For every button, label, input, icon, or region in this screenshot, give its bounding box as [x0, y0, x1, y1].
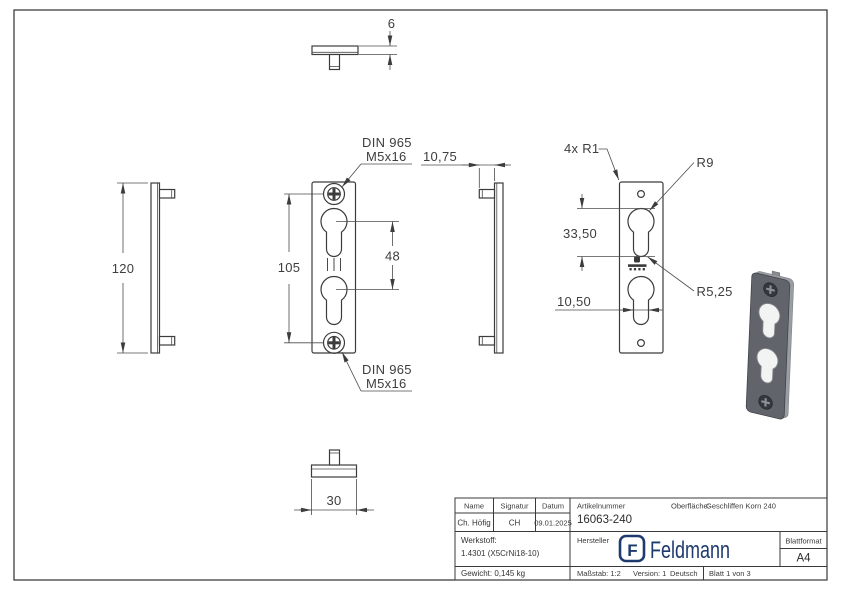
surface-label: Oberfläche: [671, 502, 710, 511]
dim-screw-spacing-value: 105 [278, 260, 301, 275]
date-value: 09.01.2025 [534, 519, 572, 528]
callout-screw-bottom: DIN 965 M5x16 [342, 352, 412, 391]
signature-label: Signatur [501, 502, 529, 511]
dim-plate-thickness: 6 [359, 16, 397, 70]
dim-slot-length-value: 33,50 [563, 226, 597, 241]
callout-keyhole-radius-value: R9 [697, 155, 714, 170]
manufacturer-label: Hersteller [577, 536, 610, 545]
dim-keyhole-pitch-value: 48 [385, 249, 400, 264]
callout-slot-radius-value: R5,25 [697, 284, 733, 299]
material-value: 1.4301 (X5CrNi18-10) [461, 549, 540, 558]
material-label: Werkstoff: [461, 536, 497, 545]
dim-plate-width-value: 30 [326, 493, 341, 508]
name-value: Ch. Höfig [457, 519, 490, 528]
weight-value: Gewicht: 0,145 kg [461, 569, 525, 578]
callout-corner-radius: 4x R1 [564, 141, 619, 180]
dim-plate-height-value: 120 [112, 261, 135, 276]
sheet-value: Blatt 1 von 3 [709, 569, 751, 578]
drawing-sheet: { "dimensions": { "plate_thickness": "6"… [0, 0, 842, 595]
dim-plate-height: 120 [112, 183, 148, 353]
view-3d-render [746, 266, 794, 421]
date-label: Datum [542, 502, 564, 511]
feldmann-logo: F Feldmann [620, 536, 730, 564]
view-right-side: 10,75 [421, 149, 511, 353]
view-front: 105 48 DIN 965 M5x16 DIN 965 M5x16 [278, 135, 412, 391]
callout-screw-bottom-line1: DIN 965 [362, 362, 412, 377]
callout-screw-bottom-line2: M5x16 [366, 376, 407, 391]
dim-plate-width: 30 [294, 479, 374, 515]
callout-screw-top-line2: M5x16 [366, 149, 407, 164]
dim-plate-thickness-value: 6 [388, 16, 396, 31]
format-value: A4 [796, 553, 811, 565]
dim-boss-depth-value: 10,75 [423, 149, 457, 164]
article-number-value: 16063-240 [577, 514, 632, 526]
scale-value: Maßstab: 1:2 [577, 569, 621, 578]
format-label: Blattformat [785, 537, 822, 546]
view-detail: 4x R1 R9 33,50 R5,25 10,50 [555, 141, 733, 353]
callout-screw-top-line1: DIN 965 [362, 135, 412, 150]
version-value: Version: 1 [633, 569, 666, 578]
signature-value: CH [509, 519, 521, 528]
name-label: Name [464, 502, 484, 511]
view-left-side: 120 [112, 183, 175, 353]
view-top: 6 [312, 16, 397, 70]
dim-boss-depth: 10,75 [421, 149, 511, 188]
article-number-label: Artikelnummer [577, 502, 626, 511]
feldmann-logo-letter: F [627, 541, 637, 560]
callout-corner-radius-value: 4x R1 [564, 141, 599, 156]
drawing-canvas: 6 120 [0, 0, 842, 595]
callout-screw-top: DIN 965 M5x16 [342, 135, 412, 187]
surface-value: Geschliffen Korn 240 [706, 502, 776, 511]
feldmann-wordmark: Feldmann [650, 537, 730, 564]
view-bottom: 30 [294, 450, 374, 515]
dim-slot-width-value: 10,50 [557, 294, 591, 309]
title-block: Name Signatur Datum Ch. Höfig CH 09.01.2… [455, 498, 827, 580]
language-value: Deutsch [670, 569, 698, 578]
